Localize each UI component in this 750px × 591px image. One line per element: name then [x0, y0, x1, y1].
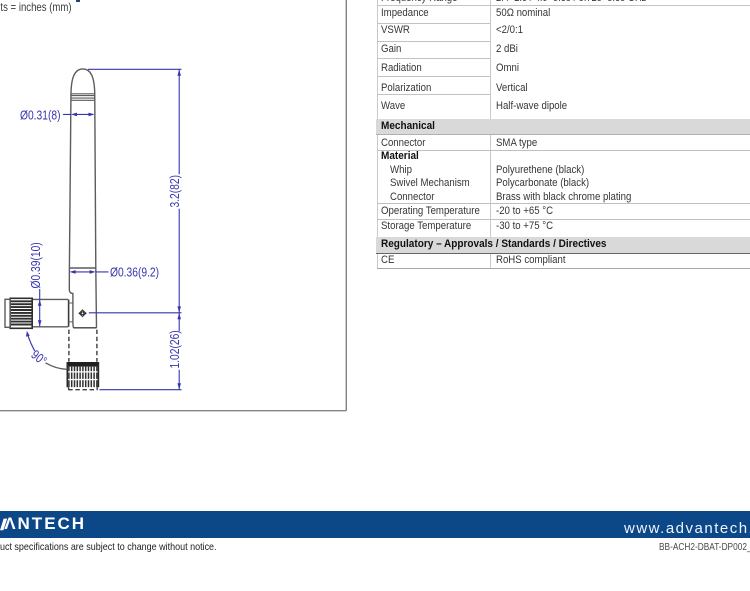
svg-text:Ø0.36(9.2): Ø0.36(9.2): [110, 265, 159, 279]
svg-text:1.02(26): 1.02(26): [168, 330, 182, 368]
svg-text:90°: 90°: [28, 348, 49, 369]
svg-text:Ø0.39(10): Ø0.39(10): [29, 242, 43, 288]
svg-text:3.2(82): 3.2(82): [168, 175, 182, 208]
svg-text:Ø0.31(8): Ø0.31(8): [20, 108, 61, 122]
